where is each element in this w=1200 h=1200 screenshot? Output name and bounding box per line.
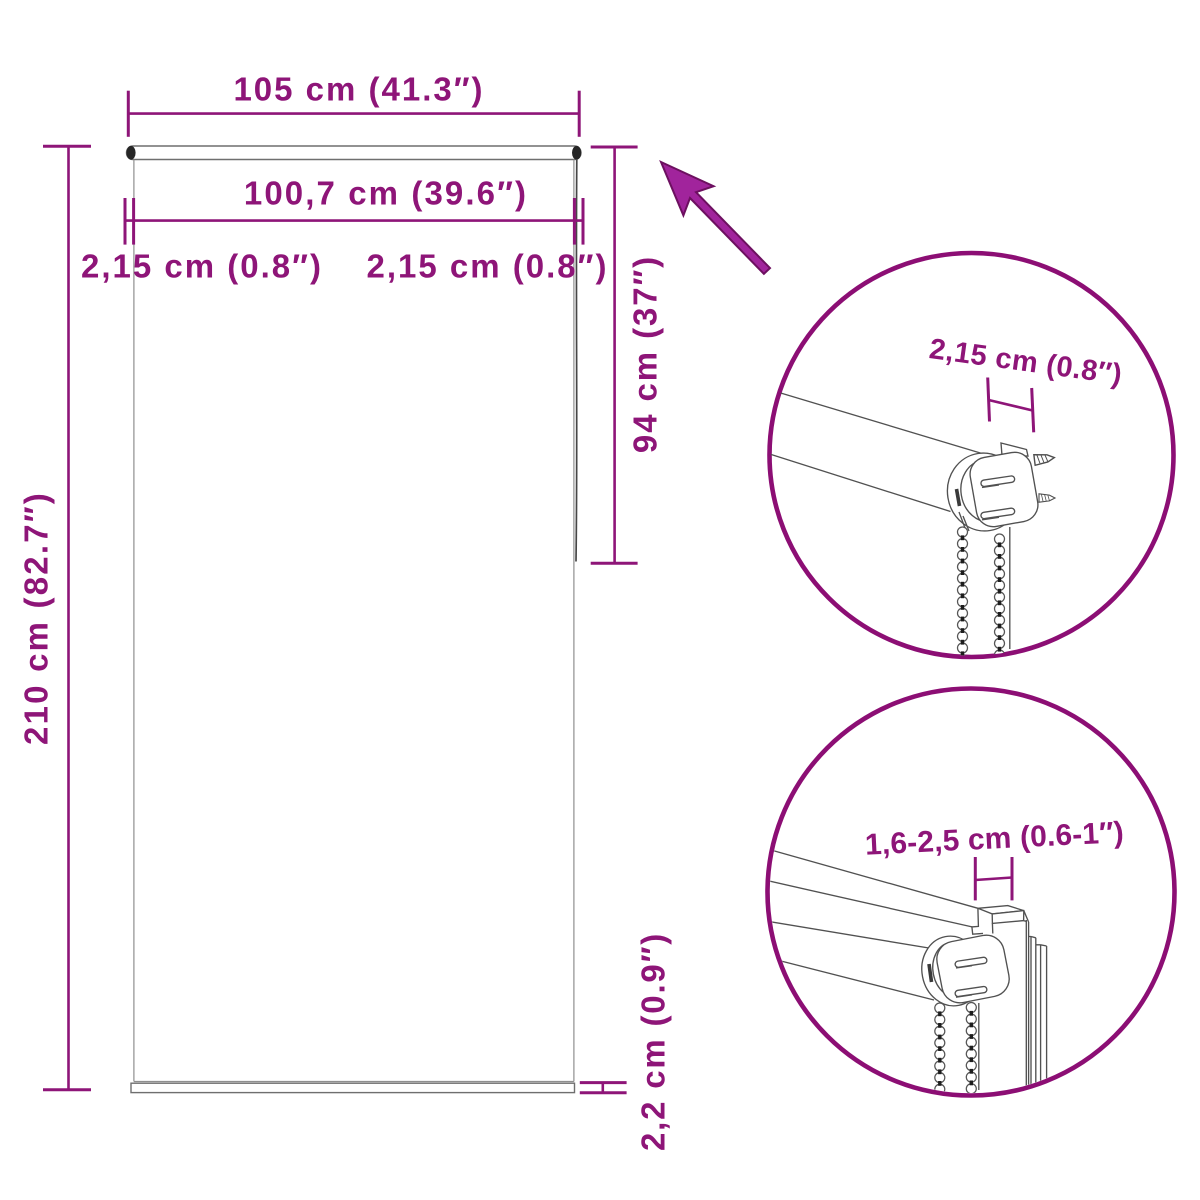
svg-text:1,6-2,5 cm (0.6-1″): 1,6-2,5 cm (0.6-1″) <box>864 816 1124 862</box>
svg-text:2,2 cm (0.9″): 2,2 cm (0.9″) <box>635 932 672 1151</box>
svg-text:2,15 cm (0.8″): 2,15 cm (0.8″) <box>81 248 323 285</box>
svg-text:210 cm (82.7″): 210 cm (82.7″) <box>18 491 55 745</box>
svg-text:94 cm (37″): 94 cm (37″) <box>626 255 663 453</box>
svg-text:105 cm (41.3″): 105 cm (41.3″) <box>233 71 484 108</box>
svg-text:2,15 cm (0.8″): 2,15 cm (0.8″) <box>367 248 609 285</box>
svg-text:2,15 cm (0.8″): 2,15 cm (0.8″) <box>927 333 1124 391</box>
svg-text:100,7 cm (39.6″): 100,7 cm (39.6″) <box>244 175 528 212</box>
